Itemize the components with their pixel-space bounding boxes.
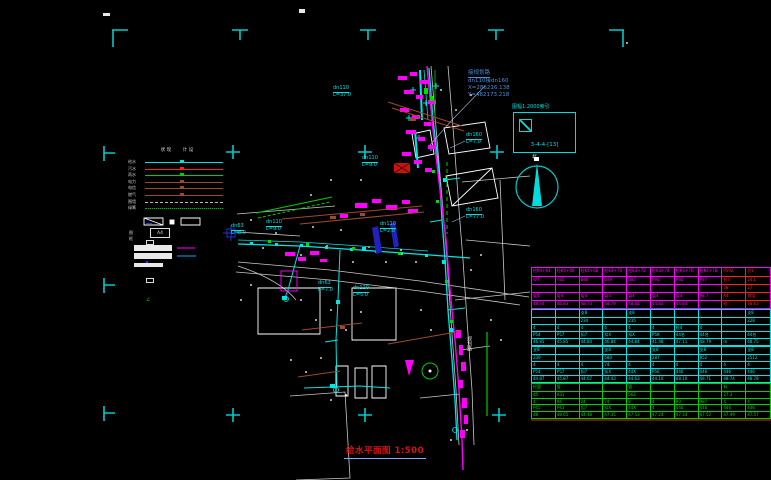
table-cell bbox=[651, 391, 675, 398]
scale-bar bbox=[134, 253, 172, 259]
table-cell: 检K4+76 bbox=[675, 268, 699, 276]
pipe-label: dn110L=2.0 bbox=[380, 222, 396, 234]
table-cell: 扣X bbox=[603, 331, 627, 338]
table-cell: 44.84 bbox=[580, 338, 604, 345]
pipe-label-length: L=2.0 bbox=[380, 228, 395, 234]
table-cell: 48.65 bbox=[556, 411, 580, 418]
table-section: 支8支8支8234235228444444检44P54P57扣7扣X扣XP5K4… bbox=[531, 309, 771, 346]
table-cell: 47.35 bbox=[603, 411, 627, 418]
table-cell bbox=[675, 384, 699, 391]
table-cell bbox=[603, 384, 627, 391]
frame-label: 图框 bbox=[129, 230, 133, 242]
table-cell: 4 bbox=[675, 361, 699, 368]
table-cell: P57 bbox=[556, 331, 580, 338]
table-cell: 44.43 bbox=[603, 375, 627, 382]
street-label: 规划路 bbox=[466, 336, 473, 351]
table-cell: 44.84 bbox=[675, 300, 699, 308]
table-cell: 24.1 bbox=[746, 276, 770, 284]
table-cell: 446 bbox=[746, 404, 770, 411]
manhole-dot bbox=[429, 370, 432, 373]
legend-col-header-existing: 现状 bbox=[159, 147, 171, 152]
legend-line-sample bbox=[145, 175, 223, 176]
table-cell: 48.74 bbox=[532, 300, 556, 308]
table-cell: 4 bbox=[722, 398, 746, 405]
legend-row-label: 给水 bbox=[128, 159, 144, 165]
table-cell: 4 bbox=[580, 361, 604, 368]
legend-line-marker bbox=[180, 167, 184, 170]
table-cell bbox=[675, 347, 699, 354]
blue-dash-icon bbox=[146, 223, 152, 224]
table-cell: 287 bbox=[651, 354, 675, 361]
legend-row-label: 电力 bbox=[128, 179, 144, 185]
legend-line-marker bbox=[180, 193, 184, 196]
table-cell: 4 bbox=[651, 361, 675, 368]
table-cell: 管4 bbox=[556, 292, 580, 300]
table-cell: 45.85 bbox=[556, 338, 580, 345]
legend-line-sample bbox=[145, 195, 223, 196]
legend-line-sample bbox=[145, 188, 223, 189]
table-cell: 48 bbox=[532, 411, 556, 418]
table-cell: 管4 bbox=[651, 292, 675, 300]
table-cell bbox=[699, 284, 723, 292]
table-cell: 446 bbox=[675, 404, 699, 411]
pipe-label: dn110L=9.0 bbox=[266, 220, 282, 232]
table-cell: 446 bbox=[722, 404, 746, 411]
table-cell: 44名 bbox=[675, 331, 699, 338]
table-cell: m bbox=[722, 338, 746, 345]
table-cell: 48.63 bbox=[746, 300, 770, 308]
table-cell: 987 bbox=[699, 398, 723, 405]
table-cell: 4 bbox=[580, 324, 604, 331]
pipe-label: dn110L=37.0 bbox=[333, 86, 351, 98]
table-cell: 48.10 bbox=[675, 375, 699, 382]
table-cell bbox=[722, 354, 746, 361]
table-section: 支8支8支8支8支8239580287852251244474444444P54… bbox=[531, 346, 771, 383]
table-section: 检管管管料4503156227.34940474849098744P45P43扣… bbox=[531, 383, 771, 419]
table-cell bbox=[651, 384, 675, 391]
table-cell: 228 bbox=[746, 317, 770, 324]
table-cell: 48.79 bbox=[699, 338, 723, 345]
table-cell bbox=[603, 317, 627, 324]
table-cell bbox=[675, 284, 699, 292]
table-cell: 支8 bbox=[699, 347, 723, 354]
north-arrow-icon bbox=[516, 157, 558, 208]
legend-extra-lines bbox=[177, 248, 196, 256]
legend-symbols-row: ∠ bbox=[146, 213, 159, 219]
table-cell bbox=[651, 284, 675, 292]
legend-row-label: 电信 bbox=[128, 185, 144, 191]
table-cell: 4 bbox=[746, 398, 770, 405]
legend-line-sample bbox=[145, 182, 223, 183]
table-cell: 4 bbox=[651, 324, 675, 331]
legend-line-sample bbox=[145, 202, 223, 203]
table-cell bbox=[556, 317, 580, 324]
table-cell: B46 bbox=[580, 276, 604, 284]
table-cell: 扣7 bbox=[580, 331, 604, 338]
table-cell: 562 bbox=[627, 391, 651, 398]
table-cell: 44.84 bbox=[627, 338, 651, 345]
table-cell: P56 bbox=[651, 368, 675, 375]
table-cell: 检K4+64 bbox=[532, 268, 556, 276]
legend-line-marker bbox=[180, 160, 184, 163]
table-cell: P43 bbox=[556, 404, 580, 411]
table-cell: 扣X bbox=[603, 404, 627, 411]
table-cell: 41.48 bbox=[651, 338, 675, 345]
table-cell: 44.82 bbox=[651, 300, 675, 308]
table-cell: 48.81 bbox=[627, 300, 651, 308]
box-symbol-icon bbox=[146, 278, 154, 283]
pipe-label: dn160L=7.0 bbox=[466, 133, 482, 145]
frame-a4-box: A4 bbox=[150, 228, 170, 238]
table-cell: 总1 bbox=[746, 268, 770, 276]
sheet-index-box: 3-4-4-[13] bbox=[513, 112, 576, 153]
pipe-label-length: L=9.0 bbox=[266, 226, 281, 232]
table-cell: 44X bbox=[627, 404, 651, 411]
table-cell: 48.78 bbox=[746, 375, 770, 382]
table-cell: 47.34 bbox=[675, 411, 699, 418]
table-cell: P592 bbox=[722, 268, 746, 276]
table-cell: 44名 bbox=[699, 331, 723, 338]
table-cell: 47.11 bbox=[675, 338, 699, 345]
table-cell bbox=[532, 284, 556, 292]
table-cell: B79 bbox=[603, 276, 627, 284]
annotation-pipe: dn110接dn160 bbox=[468, 78, 508, 84]
table-cell: 46.84 bbox=[603, 338, 627, 345]
table-cell: 扣7 bbox=[580, 404, 604, 411]
table-cell: 48.79 bbox=[603, 300, 627, 308]
table-cell: 44.48 bbox=[580, 411, 604, 418]
planning-road-annotation: 接规划路 dn110接dn160 X=286216.138 Y=482173.2… bbox=[468, 70, 510, 99]
water-pipelines bbox=[238, 68, 470, 440]
stray-text-specks bbox=[103, 9, 305, 16]
table-cell: 4 bbox=[746, 361, 770, 368]
table-cell: 38 bbox=[722, 284, 746, 292]
table-cell bbox=[627, 347, 651, 354]
table-cell: 44.07 bbox=[580, 375, 604, 382]
table-cell: 扣7 bbox=[580, 368, 604, 375]
table-cell: Y85 bbox=[556, 276, 580, 284]
table-cell bbox=[722, 347, 746, 354]
table-cell: 46.83 bbox=[556, 300, 580, 308]
table-cell: 4 bbox=[532, 361, 556, 368]
table-cell: 4 bbox=[722, 361, 746, 368]
table-cell bbox=[699, 391, 723, 398]
table-cell: A4 bbox=[722, 292, 746, 300]
table-cell: 管4 bbox=[627, 292, 651, 300]
table-cell: 料 bbox=[722, 384, 746, 391]
table-cell bbox=[722, 331, 746, 338]
table-cell: P91 bbox=[651, 276, 675, 284]
table-cell: B87 bbox=[627, 276, 651, 284]
table-cell: 239 bbox=[532, 354, 556, 361]
table-cell bbox=[746, 324, 770, 331]
table-cell: 446 bbox=[675, 368, 699, 375]
legend-line-marker bbox=[180, 186, 184, 189]
table-cell bbox=[699, 317, 723, 324]
table-cell: P97 bbox=[699, 276, 723, 284]
legend-row-label: 雨水 bbox=[128, 172, 144, 178]
table-cell: 4 bbox=[532, 324, 556, 331]
table-cell: 检K4+72 bbox=[627, 268, 651, 276]
table-cell: 44.63 bbox=[627, 375, 651, 382]
table-cell bbox=[722, 310, 746, 317]
table-bottom-border bbox=[531, 419, 771, 421]
table-cell: 管4 bbox=[675, 292, 699, 300]
table-cell: 4 bbox=[556, 361, 580, 368]
table-cell bbox=[603, 391, 627, 398]
table-cell bbox=[603, 310, 627, 317]
table-cell: W7 bbox=[532, 276, 556, 284]
table-cell: 580 bbox=[603, 354, 627, 361]
table-cell: 90 bbox=[675, 398, 699, 405]
table-cell bbox=[722, 317, 746, 324]
table-cell bbox=[699, 310, 723, 317]
table-cell: 45 bbox=[532, 391, 556, 398]
table-cell: 支8 bbox=[627, 310, 651, 317]
table-cell bbox=[556, 347, 580, 354]
table-cell: 47.49 bbox=[722, 411, 746, 418]
legend-line-sample bbox=[145, 169, 223, 170]
legend-line-sample bbox=[145, 208, 223, 209]
table-cell: 446 bbox=[699, 404, 723, 411]
table-cell: 管4 bbox=[532, 292, 556, 300]
table-cell: 47.52 bbox=[699, 411, 723, 418]
table-cell bbox=[580, 354, 604, 361]
pipe-label: dn110L=9.0 bbox=[362, 156, 378, 168]
pipe-label-length: L=77.0 bbox=[466, 214, 484, 220]
table-cell: 检K4+74 bbox=[651, 268, 675, 276]
legend-row-label: 绿篱 bbox=[128, 205, 144, 211]
table-cell: 8 bbox=[627, 398, 651, 405]
table-cell: 235 bbox=[627, 317, 651, 324]
table-cell bbox=[675, 391, 699, 398]
table-cell: 首组 bbox=[746, 292, 770, 300]
legend-line-sample bbox=[145, 162, 223, 163]
table-cell: 27.3 bbox=[722, 391, 746, 398]
table-cell bbox=[651, 317, 675, 324]
table-cell bbox=[675, 310, 699, 317]
table-cell: 234 bbox=[580, 317, 604, 324]
pipe-label-length: L=9.0 bbox=[362, 162, 377, 168]
north-label: 北 bbox=[532, 153, 537, 160]
table-cell: 检4 bbox=[722, 276, 746, 284]
scale-bar bbox=[134, 263, 163, 267]
table-cell: 446 bbox=[699, 368, 723, 375]
title-underline bbox=[344, 458, 426, 459]
table-cell bbox=[699, 384, 723, 391]
table-cell: 管 bbox=[627, 384, 651, 391]
table-cell: 支8 bbox=[746, 347, 770, 354]
table-cell: P8.7 bbox=[699, 292, 723, 300]
table-cell: 48.71 bbox=[699, 375, 723, 382]
index-box-label: 图幅1:2000索引 bbox=[512, 103, 550, 110]
table-cell: 74 bbox=[603, 361, 627, 368]
cad-drawing-canvas[interactable]: 现状 设计 给水污水雨水电力电信燃气围墙绿篱 ∠ 图框 A4 接规划路 dn11… bbox=[0, 0, 771, 480]
table-cell: 支8 bbox=[651, 347, 675, 354]
table-cell: P92 bbox=[675, 276, 699, 284]
table-cell: P5K bbox=[651, 331, 675, 338]
table-cell: 检4 bbox=[675, 324, 699, 331]
pipe-label-length: L=8.0 bbox=[231, 230, 246, 236]
pipe-label: dn160L=77.0 bbox=[466, 208, 484, 220]
table-cell: 44.10 bbox=[651, 375, 675, 382]
table-cell: P54 bbox=[532, 331, 556, 338]
table-cell: 检K4+78 bbox=[699, 268, 723, 276]
table-cell: 4 bbox=[627, 361, 651, 368]
table-cell: P57 bbox=[556, 368, 580, 375]
table-cell: 4 bbox=[532, 398, 556, 405]
legend-line-marker bbox=[180, 173, 184, 176]
table-cell: 47.24 bbox=[651, 411, 675, 418]
legend-line-marker bbox=[180, 180, 184, 183]
table-cell: 管 bbox=[556, 384, 580, 391]
table-cell: 4 bbox=[603, 324, 627, 331]
table-cell bbox=[746, 391, 770, 398]
magenta-text-blobs bbox=[285, 72, 468, 438]
table-cell: 44名 bbox=[746, 331, 770, 338]
table-cell: 4 bbox=[651, 398, 675, 405]
drawing-title: 给水平面图 1:500 bbox=[340, 444, 430, 456]
table-cell bbox=[627, 354, 651, 361]
table-cell bbox=[580, 347, 604, 354]
table-cell: 4 bbox=[651, 404, 675, 411]
annotation-road-name: 接规划路 bbox=[468, 70, 490, 78]
pipe-label-length: L=7.0 bbox=[318, 287, 333, 293]
table-cell: 45.87 bbox=[556, 375, 580, 382]
annotation-x-coord: X=286216.138 bbox=[468, 85, 510, 91]
pipe-label-length: L=5.0 bbox=[353, 292, 368, 298]
table-cell bbox=[532, 310, 556, 317]
table-cell: 031 bbox=[556, 391, 580, 398]
table-section: 检K4+64检K4+66检K4+68检K4+70检K4+72检K4+74检K4+… bbox=[531, 267, 771, 309]
table-cell: 检管 bbox=[532, 384, 556, 391]
table-cell: 46.85 bbox=[532, 338, 556, 345]
table-cell: 检K4+66 bbox=[556, 268, 580, 276]
table-cell bbox=[580, 284, 604, 292]
table-cell bbox=[532, 317, 556, 324]
table-cell bbox=[651, 310, 675, 317]
angle-glyph: ∠ bbox=[146, 297, 150, 303]
scale-bar bbox=[134, 245, 172, 251]
table-cell: 852 bbox=[699, 354, 723, 361]
table-cell: 44X bbox=[627, 368, 651, 375]
table-cell bbox=[746, 384, 770, 391]
table-cell: 48.73 bbox=[580, 300, 604, 308]
table-cell: 44.87 bbox=[532, 375, 556, 382]
table-cell: 94 bbox=[556, 398, 580, 405]
sheet-index-code: 3-4-4-[13] bbox=[514, 142, 575, 148]
table-cell: 47.53 bbox=[627, 411, 651, 418]
table-cell bbox=[603, 284, 627, 292]
pipe-label-length: L=7.0 bbox=[466, 139, 481, 145]
table-cell: 支8 bbox=[603, 347, 627, 354]
table-cell: 04 bbox=[580, 398, 604, 405]
annotation-y-coord: Y=482173.218 bbox=[468, 92, 509, 98]
table-cell bbox=[675, 354, 699, 361]
table-cell: 检K4+68 bbox=[580, 268, 604, 276]
elevation-table: 检K4+64检K4+66检K4+68检K4+70检K4+72检K4+74检K4+… bbox=[531, 267, 771, 419]
table-cell bbox=[627, 284, 651, 292]
pipe-label: dn63L=7.0 bbox=[318, 281, 333, 293]
table-cell bbox=[556, 354, 580, 361]
existing-utility-lines bbox=[282, 102, 464, 377]
table-cell: 446 bbox=[746, 368, 770, 375]
table-cell: 扣X bbox=[627, 331, 651, 338]
hatched-square-icon bbox=[519, 119, 532, 132]
table-cell: 支8 bbox=[532, 347, 556, 354]
legend-col-header-design: 设计 bbox=[181, 147, 193, 152]
table-cell: 2512 bbox=[746, 354, 770, 361]
table-cell bbox=[556, 310, 580, 317]
table-cell: P54 bbox=[532, 368, 556, 375]
pipe-label: dn110L=5.0 bbox=[353, 286, 369, 298]
table-cell: 管4 bbox=[580, 292, 604, 300]
table-cell: 4 bbox=[699, 324, 723, 331]
table-cell: 47.57 bbox=[746, 411, 770, 418]
table-cell bbox=[556, 284, 580, 292]
table-cell: 4 bbox=[699, 361, 723, 368]
table-cell: 48.74 bbox=[722, 375, 746, 382]
red-structure bbox=[394, 163, 410, 173]
table-cell bbox=[699, 300, 723, 308]
table-cell: 4 bbox=[556, 324, 580, 331]
pipe-label-length: L=37.0 bbox=[333, 92, 351, 98]
table-cell: 74 bbox=[603, 398, 627, 405]
table-cell: 扣X bbox=[603, 368, 627, 375]
table-cell: 446 bbox=[722, 368, 746, 375]
brown-blobs bbox=[330, 118, 416, 329]
table-cell: 检K4+70 bbox=[603, 268, 627, 276]
table-cell: 48.75 bbox=[746, 338, 770, 345]
legend-row-label: 燃气 bbox=[128, 192, 144, 198]
table-cell bbox=[675, 317, 699, 324]
table-cell bbox=[580, 384, 604, 391]
table-cell: 管4 bbox=[603, 292, 627, 300]
legend-row-label: 污水 bbox=[128, 166, 144, 172]
table-cell: P45 bbox=[532, 404, 556, 411]
table-cell: 支8 bbox=[580, 310, 604, 317]
table-cell: 4 bbox=[627, 324, 651, 331]
table-cell: 支8 bbox=[746, 310, 770, 317]
table-cell bbox=[580, 391, 604, 398]
legend-row-label: 围墙 bbox=[128, 199, 144, 205]
pipe-label: dn63L=8.0 bbox=[231, 224, 246, 236]
table-cell: 27 bbox=[746, 284, 770, 292]
table-cell bbox=[722, 324, 746, 331]
table-cell: 检 bbox=[722, 300, 746, 308]
